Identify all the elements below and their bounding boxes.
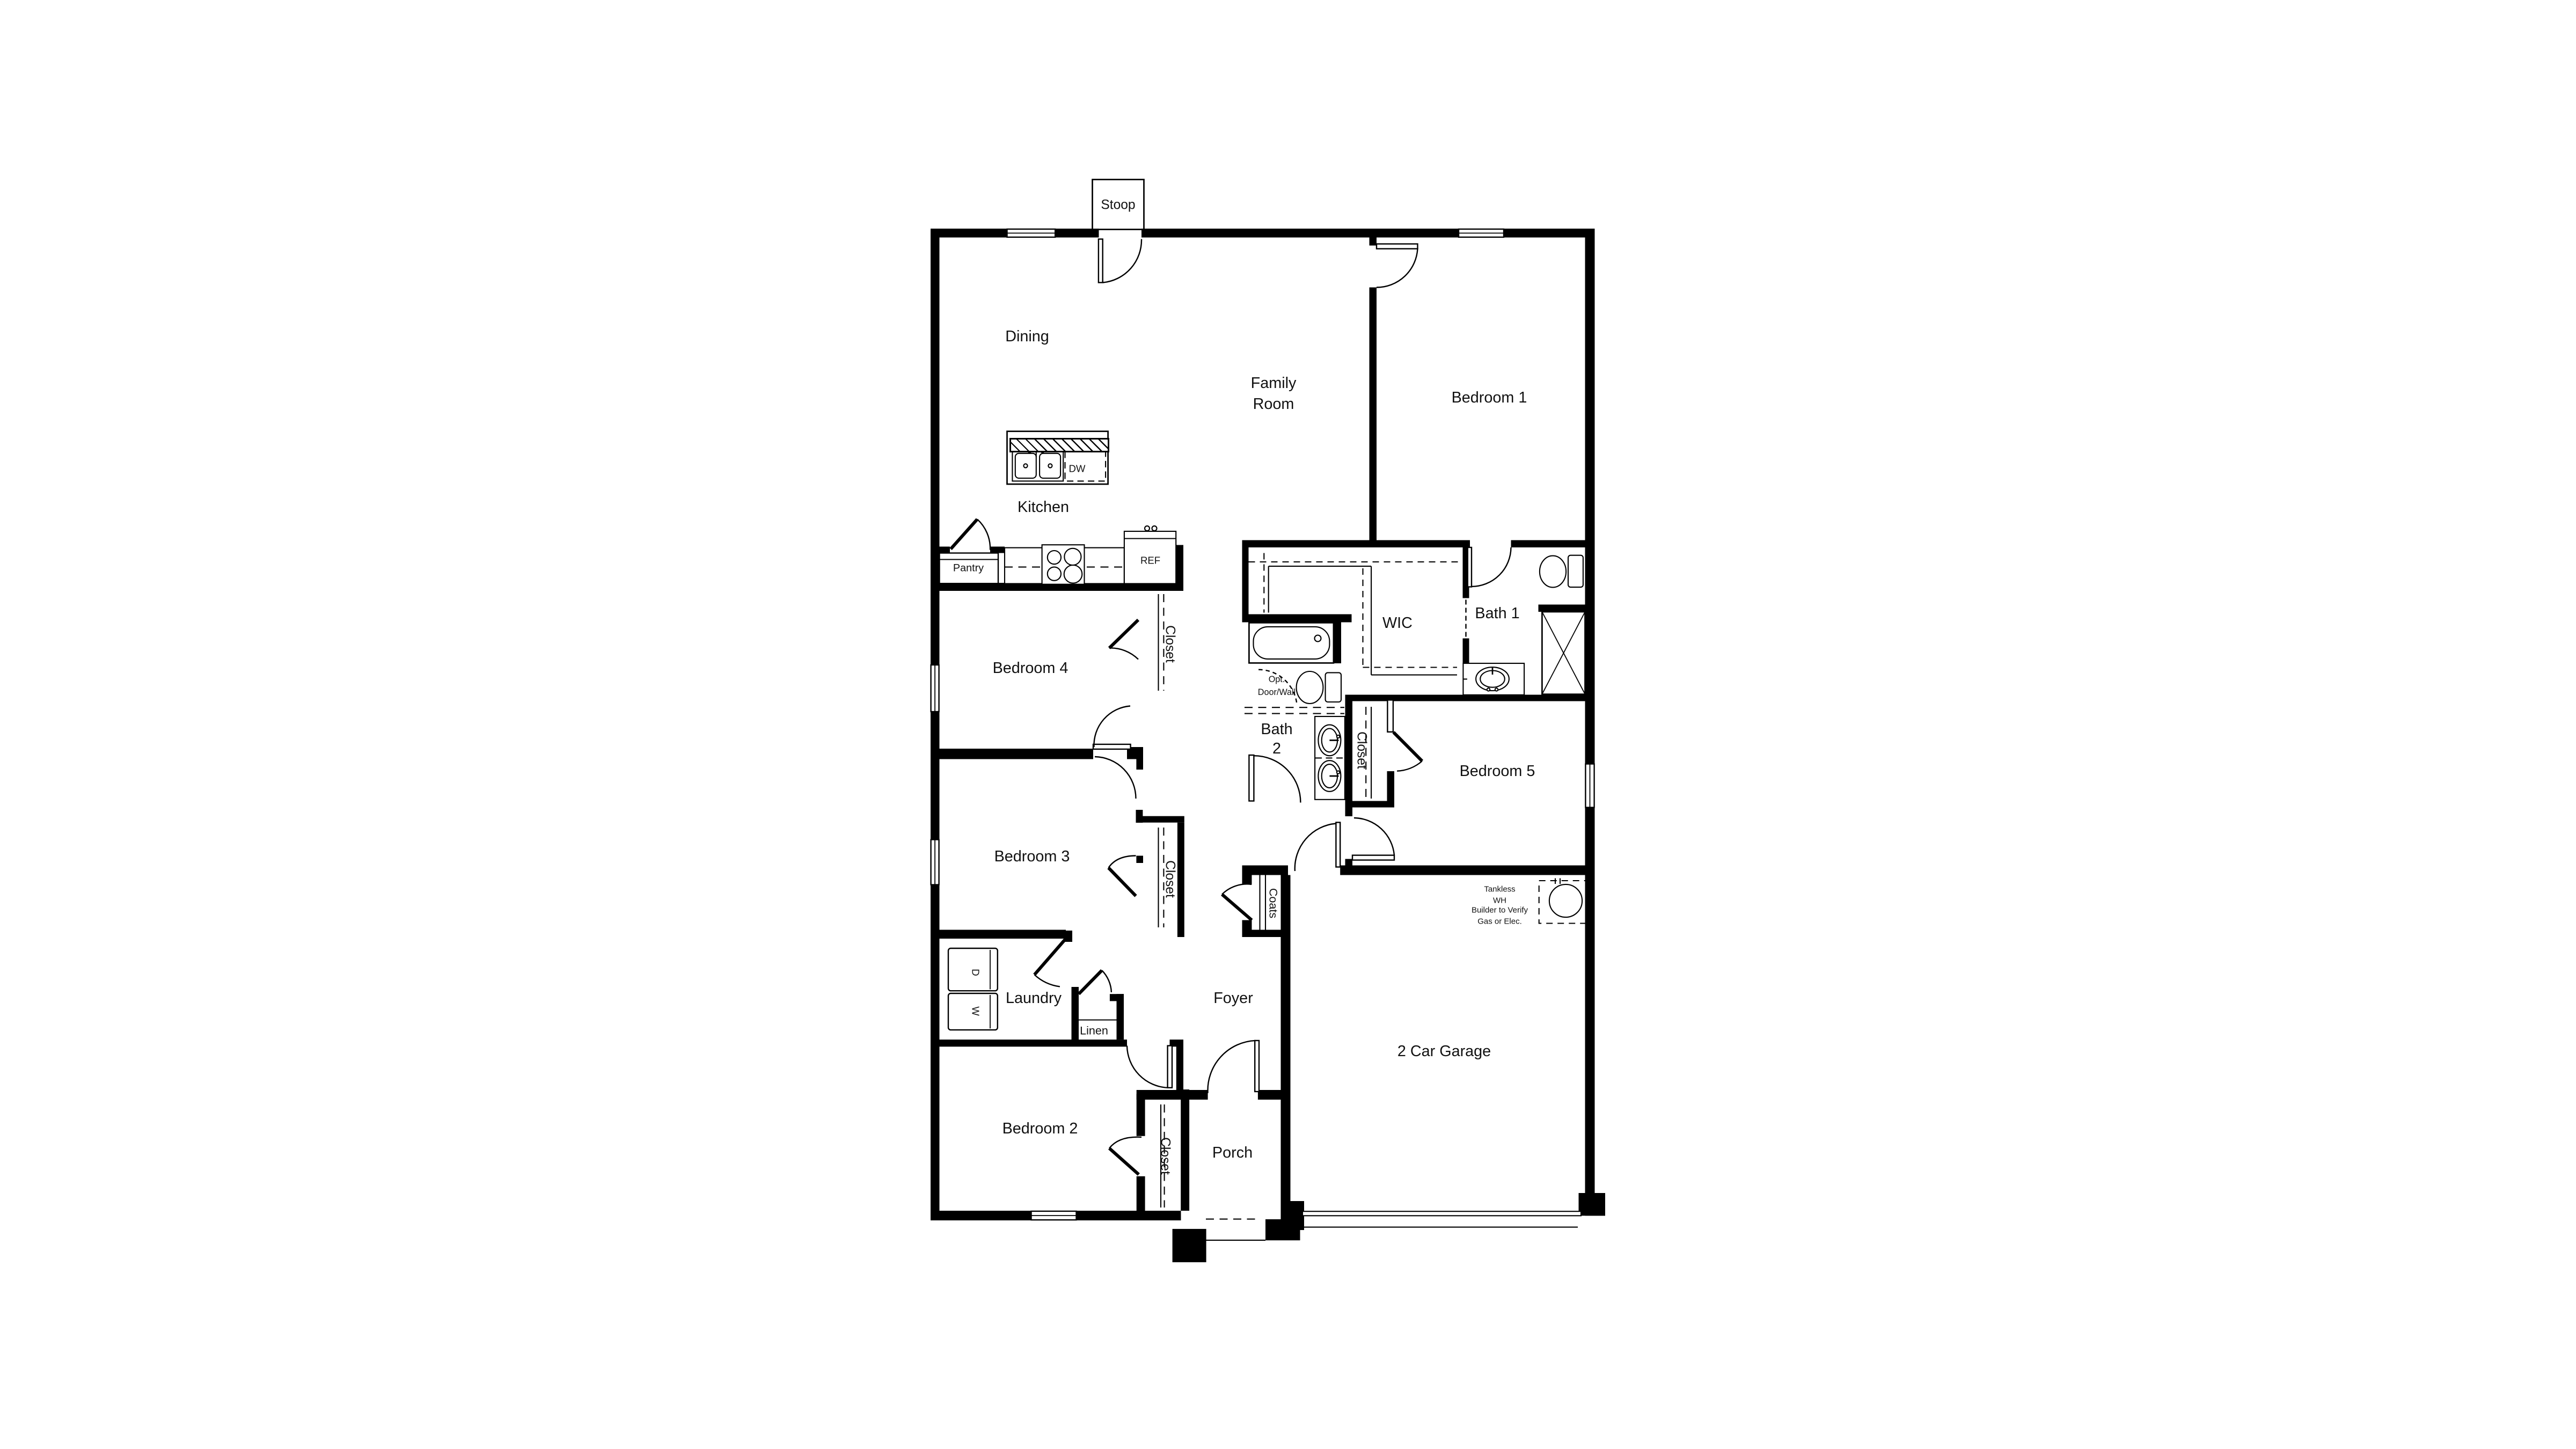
garage-door — [1302, 1211, 1581, 1227]
room-label-family-1: Family — [1251, 375, 1297, 394]
label-opt-2: Door/Wall — [1258, 687, 1296, 698]
door-bedroom3-closet — [1109, 856, 1136, 896]
room-label-bedroom5: Bedroom 5 — [1460, 763, 1535, 782]
label-dw: DW — [1069, 463, 1086, 475]
label-closet-bedroom2: Closet — [1155, 1137, 1172, 1175]
laundry-fixtures — [948, 948, 998, 1030]
room-label-wic: WIC — [1382, 615, 1413, 634]
bath1-toilet — [1540, 555, 1583, 588]
tankless-water-heater — [1539, 879, 1587, 924]
label-tankless-2: WH — [1493, 896, 1506, 906]
room-label-bath2-2: 2 — [1272, 741, 1281, 760]
island-counter-hatch — [1009, 438, 1109, 452]
door-pantry — [951, 519, 991, 550]
door-garage-entry — [1295, 822, 1340, 871]
room-label-laundry: Laundry — [1006, 990, 1062, 1009]
window-bedroom4-left — [931, 665, 939, 712]
floor-plan-page: Stoop Dining Family Room Bedroom 1 Kitch… — [0, 0, 2576, 1449]
room-label-family-2: Room — [1253, 396, 1294, 415]
island-sink — [1012, 449, 1063, 481]
door-bedroom5-closet — [1387, 700, 1422, 771]
bath1-shower — [1542, 612, 1585, 694]
bath1-fixtures — [1463, 555, 1585, 695]
window-bedroom2-bottom — [1031, 1211, 1077, 1220]
door-bedroom3 — [1095, 757, 1136, 799]
porch-edge — [1205, 1219, 1265, 1240]
room-label-bedroom3: Bedroom 3 — [994, 848, 1070, 868]
label-ref: REF — [1140, 555, 1160, 568]
label-closet-bedroom4: Closet — [1160, 625, 1177, 663]
refrigerator — [1124, 526, 1176, 583]
label-tankless-3: Builder to Verify — [1472, 906, 1528, 917]
room-label-bath2-1: Bath — [1261, 721, 1292, 740]
room-label-bedroom1: Bedroom 1 — [1452, 390, 1527, 409]
door-bedroom4-closet — [1109, 620, 1138, 660]
label-closet-bedroom3: Closet — [1161, 860, 1177, 898]
door-bedroom2-closet — [1109, 1137, 1141, 1175]
door-bedroom1 — [1377, 244, 1418, 288]
label-tankless-1: Tankless — [1484, 885, 1515, 896]
label-linen: Linen — [1080, 1022, 1108, 1037]
entry-door-stoop — [1099, 239, 1141, 283]
door-bath1 — [1468, 547, 1511, 587]
door-coats — [1222, 884, 1252, 920]
room-label-bedroom4: Bedroom 4 — [993, 660, 1069, 679]
door-front — [1207, 1041, 1259, 1093]
window-bedroom3-left — [931, 840, 939, 885]
door-bedroom4 — [1093, 706, 1131, 749]
room-label-stoop: Stoop — [1101, 197, 1135, 214]
room-label-porch: Porch — [1212, 1145, 1253, 1164]
room-label-bath1: Bath 1 — [1475, 605, 1519, 625]
room-label-bedroom2: Bedroom 2 — [1002, 1121, 1078, 1140]
window-dining-top — [1007, 229, 1056, 237]
label-dryer: D — [968, 968, 980, 975]
door-bedroom5 — [1352, 818, 1394, 860]
bath2-tub — [1249, 623, 1334, 663]
label-pantry: Pantry — [953, 562, 984, 576]
label-closet-bedroom5: Closet — [1352, 731, 1369, 769]
bath2-fixtures — [1249, 623, 1345, 799]
label-washer: W — [968, 1006, 980, 1016]
stove — [1042, 545, 1085, 584]
door-laundry — [1035, 939, 1066, 986]
room-label-foyer: Foyer — [1213, 990, 1253, 1009]
label-opt-1: Opt. — [1269, 676, 1285, 686]
label-tankless-4: Gas or Elec. — [1477, 917, 1522, 927]
door-bath2 — [1249, 755, 1300, 803]
closet-rods-shelves — [940, 553, 1463, 1208]
label-coats: Coats — [1267, 887, 1281, 917]
floor-plan: Stoop Dining Family Room Bedroom 1 Kitch… — [0, 0, 2576, 1449]
doors — [951, 239, 1511, 1175]
door-bedroom2 — [1127, 1046, 1172, 1088]
window-bedroom1-top — [1459, 229, 1504, 237]
window-bedroom5-right — [1585, 764, 1594, 808]
room-label-dining: Dining — [1005, 328, 1049, 347]
bath2-vanity — [1315, 716, 1345, 800]
door-linen — [1079, 970, 1111, 994]
bath1-vanity — [1463, 663, 1524, 695]
bath2-toilet — [1297, 671, 1341, 704]
room-label-kitchen: Kitchen — [1018, 499, 1069, 518]
room-label-garage: 2 Car Garage — [1397, 1043, 1491, 1063]
